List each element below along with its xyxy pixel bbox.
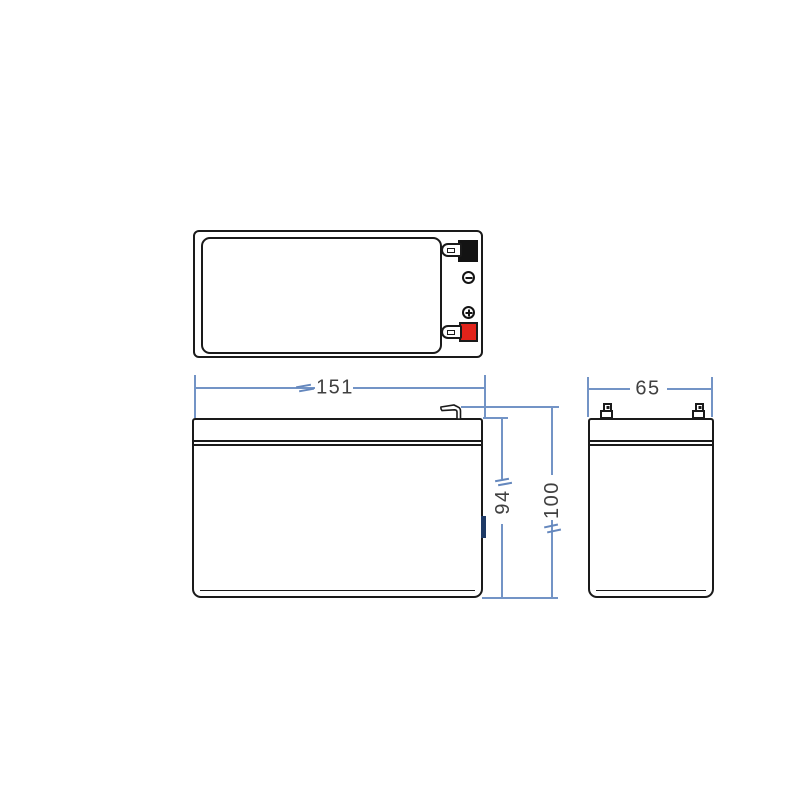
front-terminal-blade-icon	[440, 403, 463, 419]
cover-seam-line	[194, 444, 481, 446]
dim-total-height-line	[551, 407, 553, 475]
dim-width-extension-right	[484, 375, 486, 418]
side-rib-marker	[481, 516, 486, 538]
cover-seam-line	[194, 440, 481, 442]
base-edge-line	[596, 590, 706, 592]
dim-total-height-label: 100	[542, 481, 562, 519]
dim-total-height-extension-bottom	[482, 597, 558, 599]
dim-total-height-extension-top	[461, 406, 559, 408]
dim-depth-line	[588, 388, 630, 390]
dim-case-height-line	[501, 524, 503, 598]
side-view-body	[588, 418, 714, 598]
dim-depth-extension-right	[711, 377, 713, 417]
dim-width-extension-left	[194, 375, 196, 418]
dim-width-label: 151	[316, 378, 354, 398]
dim-width-line	[353, 387, 484, 389]
front-view-body	[192, 418, 483, 598]
negative-faston-tab	[441, 243, 462, 257]
top-view-inner-cover	[201, 237, 442, 354]
cover-seam-line	[590, 444, 712, 446]
dim-case-height-extension-top	[483, 417, 508, 419]
terminal-post-base	[600, 410, 613, 419]
cover-seam-line	[590, 440, 712, 442]
dim-tick-icon	[498, 482, 512, 486]
negative-terminal-icon	[462, 271, 475, 284]
base-edge-line	[200, 590, 475, 592]
dim-depth-label: 65	[635, 379, 660, 399]
dim-case-height-label: 94	[493, 489, 513, 514]
drawing-canvas: 151 94 100 65	[0, 0, 800, 800]
terminal-post-base	[692, 410, 705, 419]
dim-depth-extension-left	[587, 377, 589, 417]
faston-tab-slot	[447, 330, 455, 335]
faston-tab-slot	[447, 248, 455, 253]
positive-terminal-icon	[462, 306, 475, 319]
dim-tick-icon	[495, 478, 509, 482]
dim-case-height-line	[501, 418, 503, 479]
dim-tick-icon	[547, 529, 561, 533]
positive-faston-tab	[441, 325, 462, 339]
dim-depth-line	[667, 388, 712, 390]
